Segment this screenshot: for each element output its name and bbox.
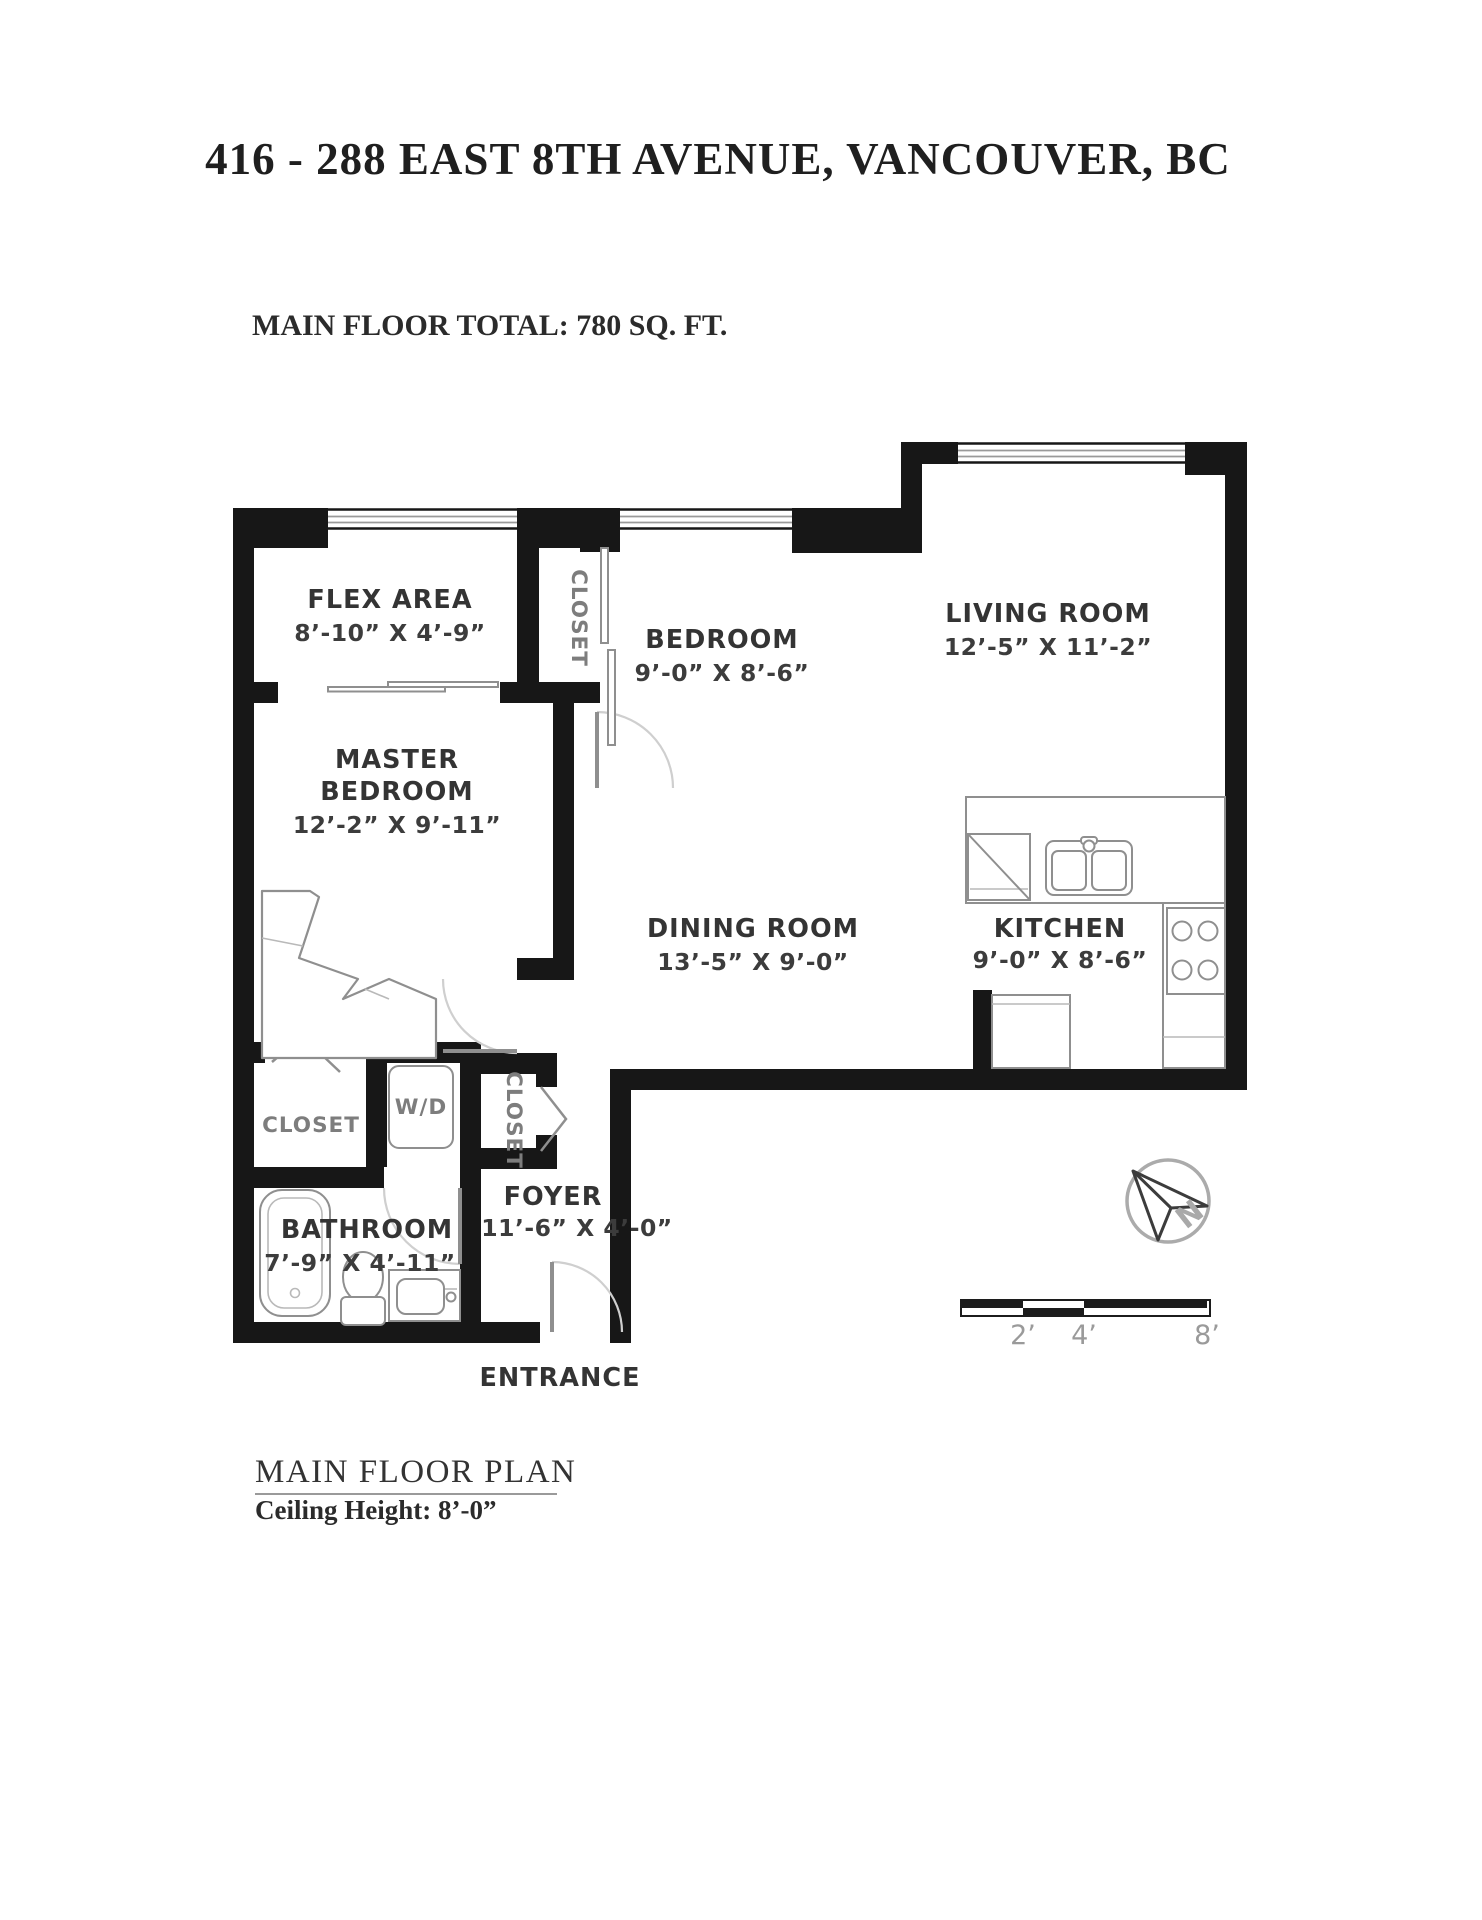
fridge bbox=[992, 995, 1070, 1068]
room-label-kitchen: KITCHEN bbox=[994, 914, 1126, 944]
plan-title: MAIN FLOOR PLAN bbox=[255, 1454, 576, 1490]
closet-label-top: CLOSET bbox=[566, 569, 591, 667]
room-label-foyer: FOYER bbox=[504, 1182, 603, 1212]
room-dims-flex: 8’-10” X 4’-9” bbox=[294, 619, 486, 647]
scale-seg-1 bbox=[961, 1300, 1023, 1308]
stove bbox=[1167, 908, 1225, 994]
windows bbox=[328, 442, 1185, 530]
floor-total: MAIN FLOOR TOTAL: 780 SQ. FT. bbox=[252, 309, 727, 342]
bedroom-closet-sliding-doors bbox=[601, 548, 615, 745]
washer-dryer-label: W/D bbox=[395, 1095, 447, 1120]
closet-label-foyer: CLOSET bbox=[501, 1071, 526, 1169]
compass: N bbox=[1127, 1160, 1211, 1242]
room-label-bathroom: BATHROOM bbox=[281, 1215, 453, 1245]
floor-plan-page: 416 - 288 EAST 8TH AVENUE, VANCOUVER, BC… bbox=[0, 0, 1482, 1920]
room-label-living: LIVING ROOM bbox=[945, 599, 1150, 629]
room-label-master-2: BEDROOM bbox=[320, 777, 473, 807]
room-label-dining: DINING ROOM bbox=[647, 914, 859, 944]
scale-seg-2 bbox=[1023, 1308, 1084, 1316]
room-dims-master: 12’-2” X 9’-11” bbox=[293, 811, 501, 839]
room-label-bedroom: BEDROOM bbox=[645, 625, 798, 655]
master-bedroom-door bbox=[443, 979, 517, 1053]
vanity-sink bbox=[389, 1270, 460, 1321]
room-dims-kitchen: 9’-0” X 8’-6” bbox=[973, 946, 1148, 974]
window-bedroom bbox=[620, 508, 792, 530]
closet-label-master: CLOSET bbox=[262, 1113, 360, 1138]
scale-tick-8: 8’ bbox=[1194, 1320, 1220, 1351]
entrance-label: ENTRANCE bbox=[480, 1363, 641, 1393]
window-living bbox=[958, 442, 1185, 464]
room-dims-living: 12’-5” X 11’-2” bbox=[944, 633, 1152, 661]
flex-sliding-door bbox=[328, 682, 498, 692]
master-bedroom-wardrobe bbox=[262, 891, 436, 1058]
ceiling-height: Ceiling Height: 8’-0” bbox=[255, 1495, 496, 1525]
page-title: 416 - 288 EAST 8TH AVENUE, VANCOUVER, BC bbox=[205, 134, 1231, 184]
scale-tick-4: 4’ bbox=[1071, 1320, 1097, 1351]
room-dims-bathroom: 7’-9” X 4’-11” bbox=[264, 1249, 456, 1277]
room-dims-dining: 13’-5” X 9’-0” bbox=[657, 948, 849, 976]
scale-tick-2: 2’ bbox=[1010, 1320, 1036, 1351]
room-label-master-1: MASTER bbox=[335, 745, 459, 775]
room-dims-foyer: 11’-6” X 4’-0” bbox=[481, 1214, 673, 1242]
scale-bar: 2’ 4’ 8’ bbox=[961, 1300, 1220, 1351]
footer: MAIN FLOOR PLAN Ceiling Height: 8’-0” bbox=[255, 1454, 576, 1525]
dishwasher bbox=[968, 834, 1030, 900]
room-label-flex: FLEX AREA bbox=[307, 585, 472, 615]
kitchen-sink bbox=[1046, 837, 1132, 895]
room-dims-bedroom: 9’-0” X 8’-6” bbox=[635, 659, 810, 687]
scale-seg-3 bbox=[1084, 1300, 1207, 1308]
window-flex bbox=[328, 508, 517, 530]
